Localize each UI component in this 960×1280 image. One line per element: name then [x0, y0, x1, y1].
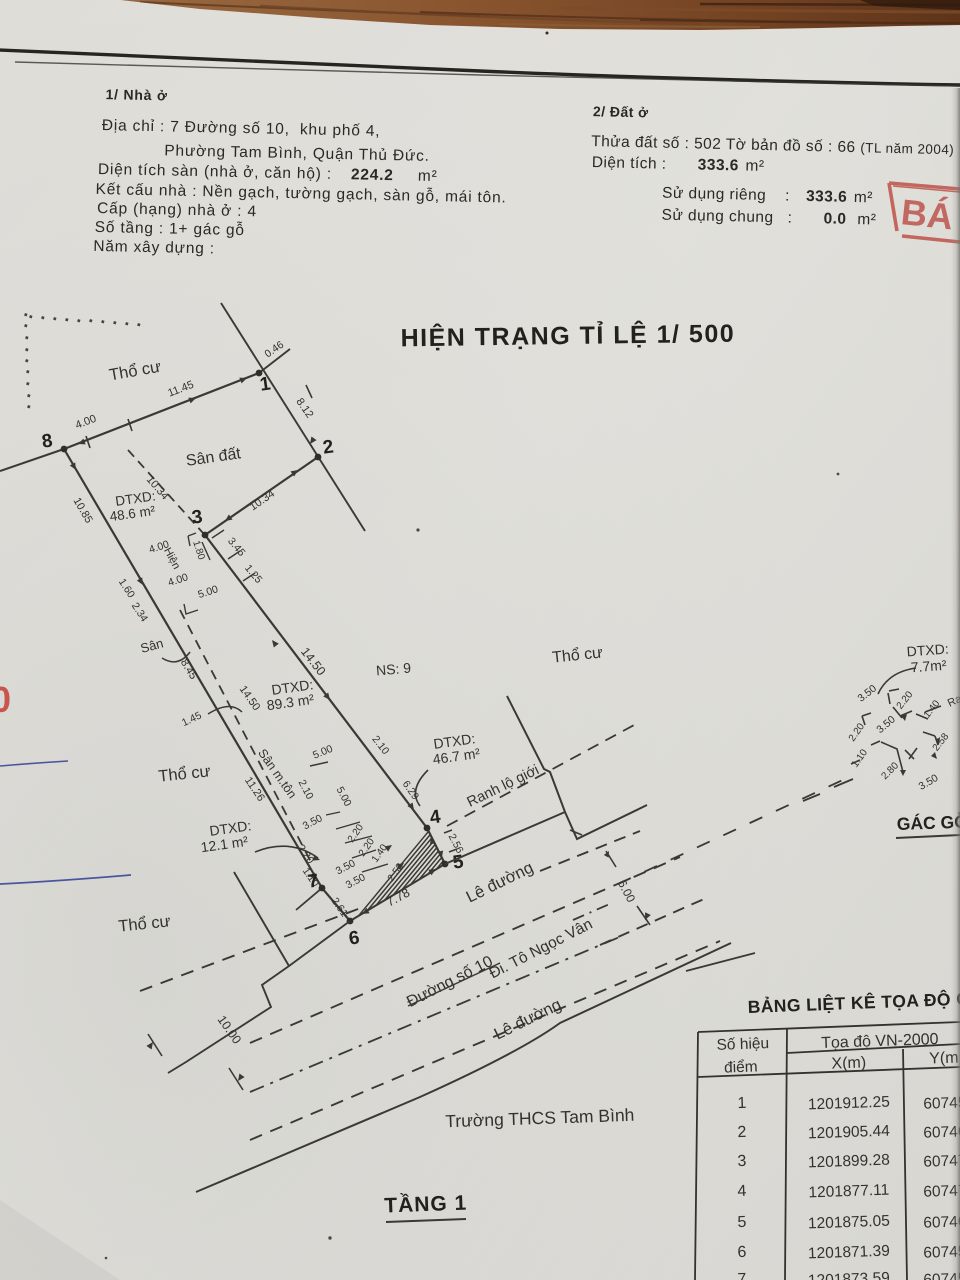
- svg-text:3: 3: [737, 1153, 747, 1170]
- svg-text:điểm: điểm: [724, 1058, 758, 1076]
- svg-text:7.7m²: 7.7m²: [910, 657, 947, 675]
- svg-text:HIỆN TRẠNG TỈ LỆ 1/ 500: HIỆN TRẠNG TỈ LỆ 1/ 500: [400, 318, 735, 353]
- svg-text:1201875.05: 1201875.05: [808, 1213, 890, 1233]
- svg-text:0: 0: [0, 679, 11, 720]
- svg-text:1201877.11: 1201877.11: [808, 1182, 889, 1202]
- svg-text:1201899.28: 1201899.28: [808, 1152, 890, 1172]
- svg-text:1201873.59: 1201873.59: [808, 1270, 890, 1280]
- svg-text:1201912.25: 1201912.25: [808, 1094, 890, 1114]
- svg-text:BÁ: BÁ: [899, 191, 955, 237]
- svg-text:Cấp (hạng) nhà ở : 4: Cấp (hạng) nhà ở : 4: [97, 200, 257, 220]
- svg-text:GÁC GỖ: GÁC GỖ: [896, 811, 960, 834]
- svg-text:Số tầng : 1+ gác gỗ: Số tầng : 1+ gác gỗ: [95, 219, 245, 239]
- svg-text:1201905.44: 1201905.44: [808, 1123, 891, 1143]
- svg-text:5: 5: [737, 1214, 747, 1231]
- svg-text:7: 7: [737, 1271, 747, 1280]
- svg-text:2: 2: [737, 1124, 747, 1141]
- svg-text:Năm xây dựng :: Năm xây dựng :: [93, 238, 215, 258]
- svg-text:TẦNG 1: TẦNG 1: [384, 1192, 468, 1218]
- svg-text:2/ Đất ở: 2/ Đất ở: [593, 103, 649, 120]
- svg-text:1: 1: [737, 1095, 747, 1112]
- svg-text:1/ Nhà ở: 1/ Nhà ở: [105, 86, 168, 103]
- svg-text:NS: 9: NS: 9: [375, 660, 411, 679]
- svg-text:X(m): X(m): [831, 1054, 866, 1072]
- svg-text:6: 6: [737, 1244, 747, 1261]
- svg-text:Số hiệu: Số hiệu: [716, 1035, 769, 1054]
- svg-text:1201871.39: 1201871.39: [808, 1243, 890, 1263]
- svg-text:4: 4: [737, 1183, 747, 1200]
